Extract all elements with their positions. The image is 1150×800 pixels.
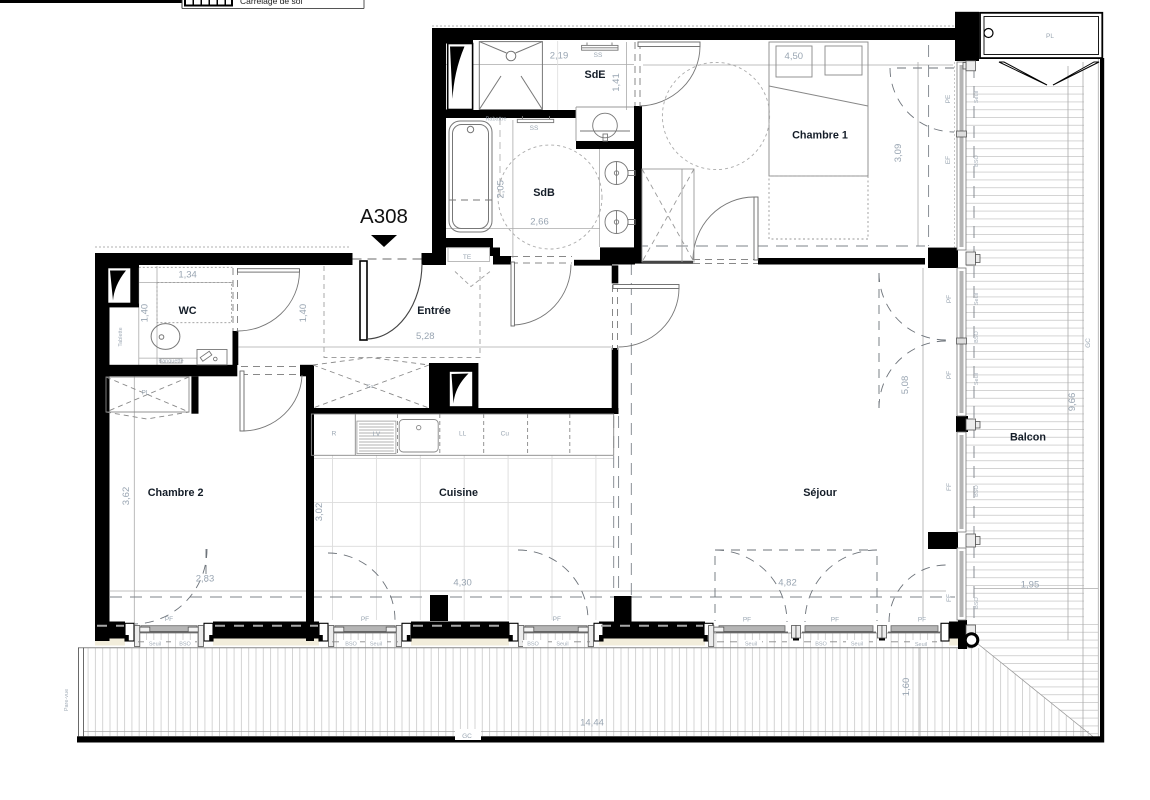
svg-text:Seuil: Seuil — [974, 91, 980, 103]
svg-text:BSO: BSO — [179, 642, 191, 648]
svg-text:4,50: 4,50 — [785, 51, 804, 62]
svg-text:Seuil: Seuil — [556, 642, 568, 648]
svg-text:EF: EF — [945, 156, 952, 164]
svg-text:GC: GC — [1085, 338, 1092, 348]
svg-text:Seuil: Seuil — [745, 642, 757, 648]
svg-text:Cu: Cu — [501, 431, 510, 438]
svg-text:Carrelage de sol: Carrelage de sol — [240, 0, 302, 6]
svg-text:SS: SS — [594, 52, 603, 59]
svg-text:PF: PF — [918, 617, 926, 624]
svg-text:BSO: BSO — [974, 154, 980, 166]
svg-text:PF: PF — [361, 616, 369, 623]
svg-text:Banquette: Banquette — [158, 359, 183, 365]
svg-text:GC: GC — [462, 733, 472, 740]
svg-text:BSO: BSO — [815, 642, 827, 648]
svg-text:LL: LL — [459, 431, 467, 438]
svg-text:FF: FF — [946, 594, 953, 602]
svg-text:PF: PF — [946, 371, 953, 379]
svg-text:5,08: 5,08 — [900, 376, 911, 395]
svg-text:A308: A308 — [360, 205, 408, 228]
svg-text:2,05: 2,05 — [495, 180, 506, 199]
svg-text:BSO: BSO — [974, 330, 980, 342]
svg-text:Balcon: Balcon — [1010, 432, 1046, 444]
svg-text:Seuil: Seuil — [915, 642, 927, 648]
svg-text:Entrée: Entrée — [417, 305, 451, 317]
svg-text:2,66: 2,66 — [530, 217, 549, 228]
svg-text:PF: PF — [831, 617, 839, 624]
svg-text:Gs: Gs — [366, 384, 373, 390]
svg-text:PE: PE — [945, 94, 952, 103]
svg-text:Rabattre: Rabattre — [485, 117, 506, 123]
svg-text:BSO: BSO — [974, 484, 980, 496]
svg-text:3,62: 3,62 — [121, 487, 132, 506]
svg-text:Seuil: Seuil — [370, 642, 382, 648]
svg-text:Séjour: Séjour — [803, 487, 837, 499]
svg-text:BSO: BSO — [974, 596, 980, 608]
svg-text:PF: PF — [553, 616, 561, 623]
svg-text:1,60: 1,60 — [901, 678, 912, 697]
svg-text:Pare-vue: Pare-vue — [64, 689, 70, 711]
svg-text:2,83: 2,83 — [196, 574, 215, 585]
svg-text:1,41: 1,41 — [611, 73, 622, 92]
svg-text:SS: SS — [530, 125, 539, 132]
svg-text:PF: PF — [743, 617, 751, 624]
svg-text:PF: PF — [165, 616, 173, 623]
svg-text:TE: TE — [463, 254, 472, 261]
svg-text:PF: PF — [946, 295, 953, 303]
svg-text:PL: PL — [1046, 33, 1054, 40]
svg-text:14,44: 14,44 — [580, 718, 604, 729]
svg-text:1,95: 1,95 — [1021, 580, 1040, 591]
svg-text:SdE: SdE — [585, 69, 606, 81]
svg-text:1,40: 1,40 — [139, 304, 150, 323]
svg-text:1,34: 1,34 — [178, 270, 197, 281]
svg-text:3,02: 3,02 — [314, 503, 325, 522]
svg-text:Tablette: Tablette — [118, 327, 124, 346]
svg-text:BSO: BSO — [527, 642, 539, 648]
svg-text:BSO: BSO — [345, 642, 357, 648]
svg-text:PL: PL — [142, 390, 150, 397]
svg-text:Seuil: Seuil — [851, 642, 863, 648]
svg-text:4,82: 4,82 — [778, 578, 797, 589]
svg-text:1,40: 1,40 — [298, 304, 309, 323]
svg-text:Seuil: Seuil — [149, 642, 161, 648]
svg-text:WC: WC — [179, 305, 197, 317]
svg-text:LV: LV — [373, 431, 381, 438]
svg-text:2,19: 2,19 — [550, 51, 569, 62]
svg-text:Cuisine: Cuisine — [439, 487, 478, 499]
svg-text:Seuil: Seuil — [974, 293, 980, 305]
svg-text:R: R — [332, 431, 337, 438]
svg-text:Seuil: Seuil — [974, 373, 980, 385]
svg-text:3,09: 3,09 — [893, 144, 904, 163]
svg-text:Chambre 2: Chambre 2 — [148, 487, 204, 499]
svg-text:5,28: 5,28 — [416, 331, 435, 342]
svg-text:9,66: 9,66 — [1067, 393, 1078, 412]
svg-text:Chambre 1: Chambre 1 — [792, 130, 848, 142]
svg-text:4,30: 4,30 — [453, 578, 472, 589]
svg-text:SdB: SdB — [533, 187, 555, 199]
svg-text:FF: FF — [946, 483, 953, 491]
